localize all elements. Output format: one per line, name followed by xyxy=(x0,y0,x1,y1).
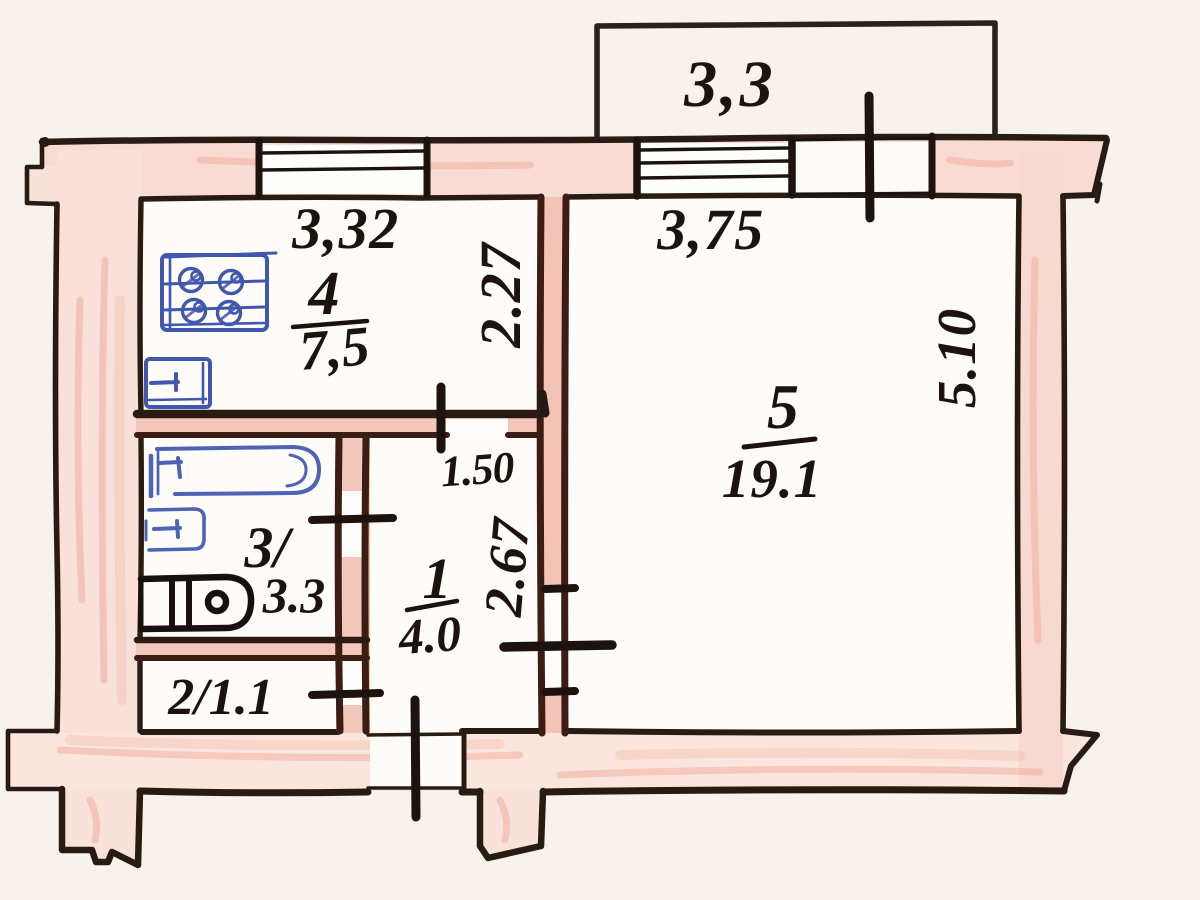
svg-text:2/1.1: 2/1.1 xyxy=(167,669,273,726)
svg-text:7,5: 7,5 xyxy=(297,315,372,383)
svg-text:2.27: 2.27 xyxy=(468,241,533,349)
svg-text:5: 5 xyxy=(767,371,799,442)
svg-text:1.50: 1.50 xyxy=(439,442,516,496)
svg-text:2.67: 2.67 xyxy=(473,514,542,619)
svg-text:3,32: 3,32 xyxy=(291,196,400,261)
svg-text:3.3: 3.3 xyxy=(262,567,326,623)
svg-text:19.1: 19.1 xyxy=(722,448,822,509)
svg-text:4.0: 4.0 xyxy=(396,605,463,665)
svg-text:5.10: 5.10 xyxy=(926,308,987,408)
svg-text:3,75: 3,75 xyxy=(656,197,765,262)
svg-text:3,3: 3,3 xyxy=(683,48,776,121)
